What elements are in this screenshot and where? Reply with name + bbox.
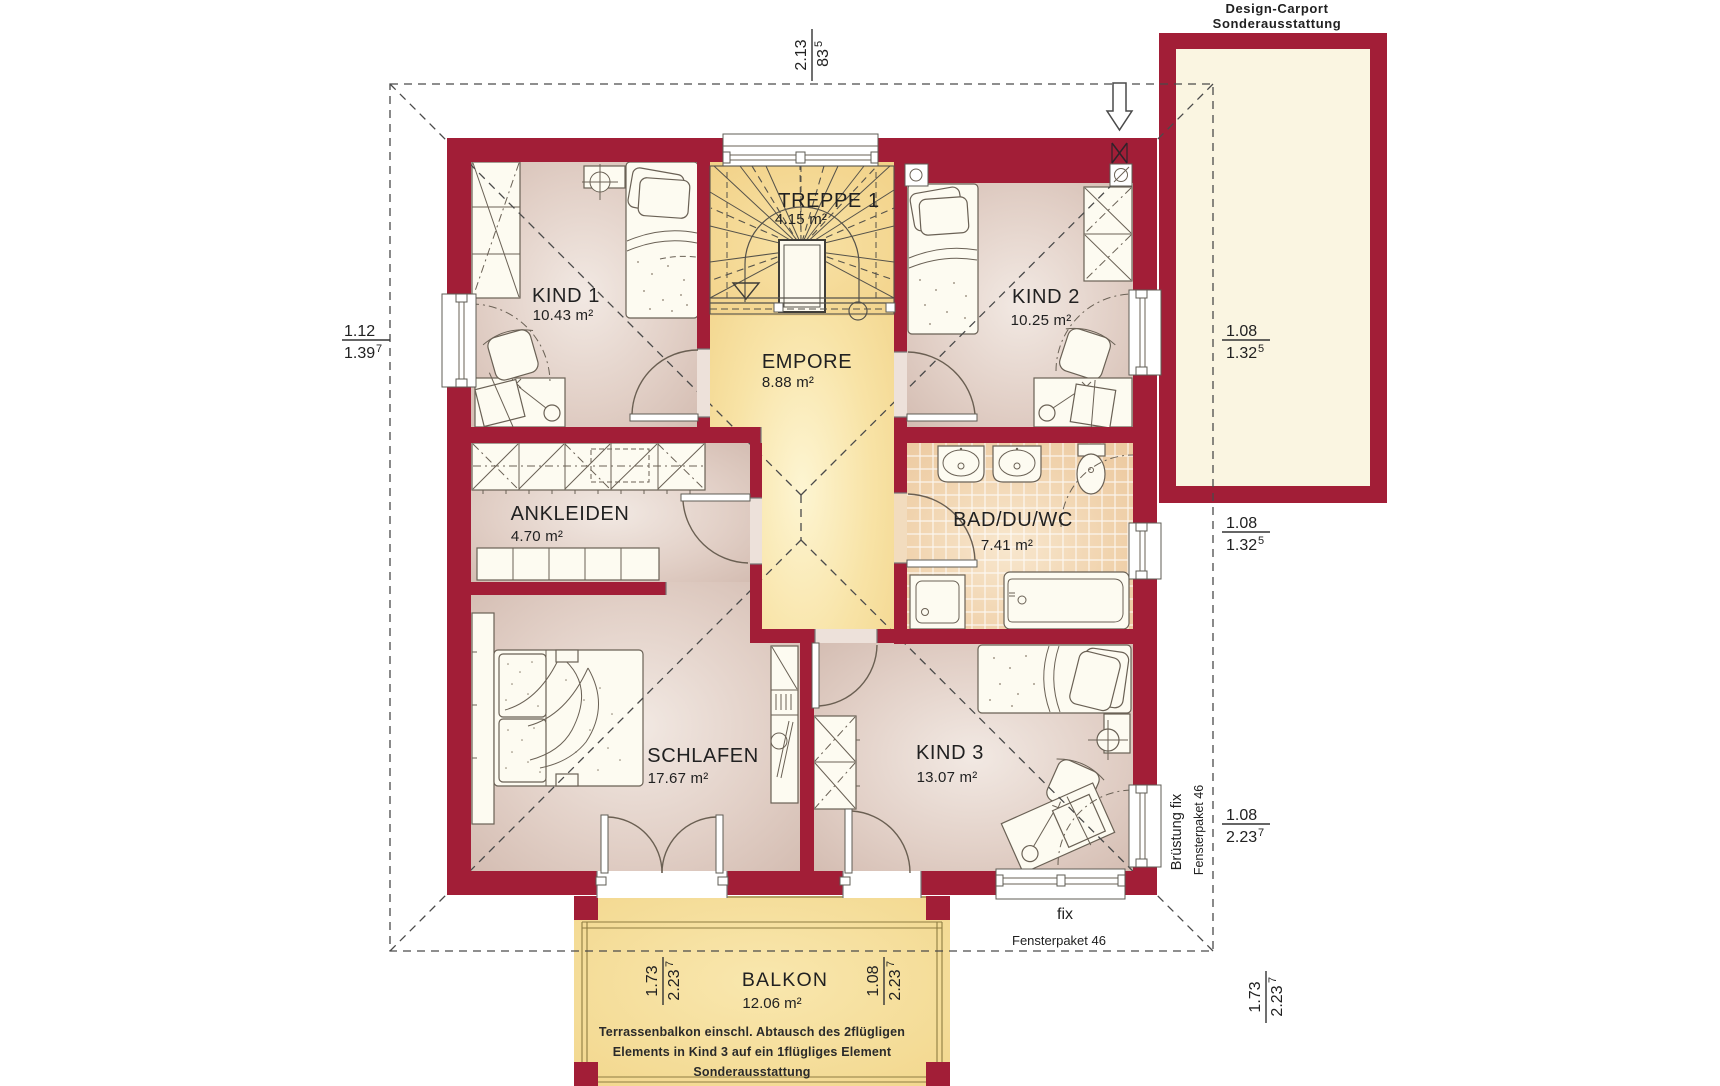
svg-text:KIND 2: KIND 2 [1012, 286, 1080, 308]
svg-text:2.23: 2.23 [1226, 829, 1257, 846]
svg-text:10.43 m²: 10.43 m² [533, 307, 594, 324]
svg-text:1.12: 1.12 [344, 323, 375, 340]
svg-text:7: 7 [664, 961, 676, 967]
svg-text:fix: fix [1057, 906, 1073, 923]
svg-text:1.32: 1.32 [1226, 345, 1257, 362]
svg-text:1.08: 1.08 [1226, 515, 1257, 532]
svg-text:TREPPE 1: TREPPE 1 [778, 190, 880, 212]
svg-text:17.67 m²: 17.67 m² [648, 770, 709, 787]
svg-text:1.39: 1.39 [344, 345, 375, 362]
svg-text:10.25 m²: 10.25 m² [1011, 312, 1072, 329]
svg-text:Design-Carport: Design-Carport [1225, 1, 1328, 16]
svg-text:SCHLAFEN: SCHLAFEN [647, 745, 759, 767]
svg-text:ANKLEIDEN: ANKLEIDEN [511, 503, 630, 525]
svg-text:5: 5 [1258, 535, 1264, 547]
svg-text:KIND 1: KIND 1 [532, 285, 600, 307]
svg-text:BAD/DU/WC: BAD/DU/WC [953, 509, 1073, 531]
svg-text:Fensterpaket 46: Fensterpaket 46 [1012, 933, 1106, 948]
svg-text:8.88 m²: 8.88 m² [762, 374, 814, 391]
svg-text:7: 7 [1258, 827, 1264, 839]
svg-text:2.23: 2.23 [1269, 985, 1286, 1016]
svg-text:Sonderausstattung: Sonderausstattung [1213, 16, 1342, 31]
svg-text:7.41 m²: 7.41 m² [981, 537, 1033, 554]
svg-text:12.06 m²: 12.06 m² [742, 995, 801, 1012]
svg-text:Elements in Kind 3 auf ein 1fl: Elements in Kind 3 auf ein 1flügliges El… [613, 1045, 892, 1059]
svg-text:1.32: 1.32 [1226, 537, 1257, 554]
svg-text:7: 7 [376, 343, 382, 355]
svg-text:1.73: 1.73 [644, 965, 661, 996]
svg-text:1.08: 1.08 [1226, 323, 1257, 340]
svg-text:2.13: 2.13 [793, 39, 810, 70]
svg-text:2.23: 2.23 [666, 969, 683, 1000]
svg-text:7: 7 [1267, 977, 1279, 983]
svg-text:4.15 m²: 4.15 m² [775, 211, 827, 228]
svg-text:5: 5 [813, 41, 825, 47]
svg-text:EMPORE: EMPORE [762, 351, 852, 373]
svg-text:4.70 m²: 4.70 m² [511, 528, 563, 545]
svg-text:Sonderausstattung: Sonderausstattung [693, 1065, 810, 1079]
svg-text:BALKON: BALKON [742, 969, 828, 991]
svg-text:83: 83 [815, 49, 832, 67]
svg-text:Terrassenbalkon einschl. Abtau: Terrassenbalkon einschl. Abtausch des 2f… [599, 1025, 905, 1039]
svg-text:1.08: 1.08 [1226, 807, 1257, 824]
svg-text:1.08: 1.08 [865, 965, 882, 996]
svg-text:KIND 3: KIND 3 [916, 742, 984, 764]
svg-text:5: 5 [1258, 343, 1264, 355]
svg-text:13.07 m²: 13.07 m² [917, 769, 978, 786]
svg-text:2.23: 2.23 [887, 969, 904, 1000]
svg-text:Fensterpaket 46: Fensterpaket 46 [1192, 785, 1206, 875]
svg-text:Brüstung fix: Brüstung fix [1169, 793, 1185, 870]
svg-text:7: 7 [885, 961, 897, 967]
svg-text:1.73: 1.73 [1247, 981, 1264, 1012]
